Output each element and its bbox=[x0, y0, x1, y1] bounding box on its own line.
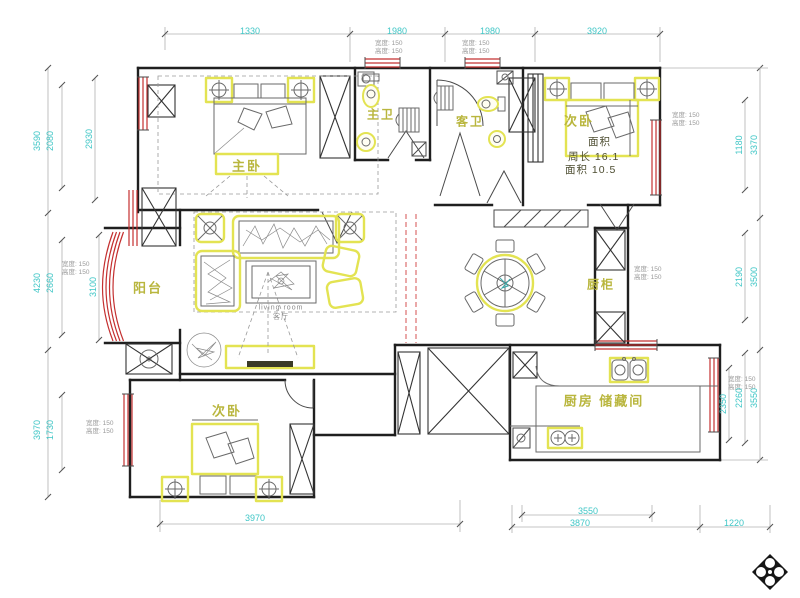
dim-top-4: 3920 bbox=[587, 26, 607, 36]
chair bbox=[526, 253, 545, 275]
dim-top-3: 1980 bbox=[480, 26, 500, 36]
dim-top-2: 1980 bbox=[387, 26, 407, 36]
column-junction bbox=[142, 188, 176, 246]
coffee-table bbox=[246, 261, 316, 303]
sink bbox=[357, 133, 375, 151]
dim-bottom-right-2: 3870 bbox=[570, 518, 590, 528]
chair bbox=[496, 240, 514, 252]
stat-area-tag: 面积 bbox=[588, 134, 611, 149]
window-top-guest-bath bbox=[465, 57, 500, 69]
furniture-guest-bath bbox=[434, 71, 513, 147]
room-label-cabinet: 厨柜 bbox=[587, 276, 615, 293]
window-note: 宽度: 150高度: 150 bbox=[672, 112, 699, 128]
chair bbox=[496, 314, 514, 326]
closet-column bbox=[320, 76, 350, 158]
dim-left-inner-2: 2660 bbox=[45, 273, 55, 293]
living-room-note-line1: living room bbox=[259, 305, 304, 312]
dim-bottom-right-3: 1220 bbox=[724, 518, 744, 528]
window-junction-left bbox=[129, 190, 137, 246]
door-master-bath bbox=[388, 131, 424, 158]
chair bbox=[526, 291, 545, 313]
window-bedroom-top-right bbox=[650, 120, 662, 195]
furniture-bedroom-bottom-left bbox=[162, 420, 282, 501]
room-label-guest-bath: 客卫 bbox=[456, 113, 484, 130]
window-top-master-bath bbox=[365, 57, 400, 69]
dim-left-outer-2: 4230 bbox=[32, 273, 42, 293]
dim-master-bedroom-height: 2930 bbox=[84, 129, 94, 149]
window-note: 宽度: 150高度: 150 bbox=[634, 266, 661, 282]
chair bbox=[464, 291, 483, 313]
room-label-kitchen-storage: 厨房 储藏间 bbox=[564, 391, 645, 410]
toilet bbox=[363, 85, 379, 107]
room-label-bedroom-bottom-left: 次卧 bbox=[212, 401, 242, 420]
room-label-master-bedroom: 主卧 bbox=[232, 156, 262, 175]
dim-right-outer-2: 3500 bbox=[749, 267, 759, 287]
column-kitchen bbox=[513, 352, 537, 378]
dim-left-inner-3: 1730 bbox=[45, 420, 55, 440]
dim-top-1: 1330 bbox=[240, 26, 260, 36]
furniture-master-bedroom bbox=[158, 76, 378, 198]
room-label-balcony: 阳台 bbox=[133, 278, 163, 297]
door-arc-bedroom-bl bbox=[285, 380, 313, 408]
dim-right-inner-2: 2190 bbox=[734, 267, 744, 287]
room-label-master-bath: 主卫 bbox=[367, 106, 395, 123]
dim-right-window: 2350 bbox=[718, 394, 728, 414]
window-kitchen-top bbox=[595, 339, 657, 351]
window-note: 宽度: 150高度: 150 bbox=[86, 420, 113, 436]
toilet bbox=[478, 97, 498, 111]
sink bbox=[489, 131, 505, 147]
column-bedroom-bl bbox=[290, 424, 314, 494]
shaft-large bbox=[428, 348, 509, 434]
side-chair bbox=[326, 277, 364, 309]
window-master-bedroom-left bbox=[137, 77, 149, 130]
living-room-note-line2: 客厅 bbox=[273, 312, 289, 322]
furniture-living-room bbox=[187, 212, 396, 368]
floor-plan-drawing bbox=[0, 0, 800, 598]
door-hall bbox=[487, 171, 521, 203]
dim-bottom-right-1: 3550 bbox=[578, 506, 598, 516]
window-balcony-curved bbox=[103, 232, 124, 341]
side-chair bbox=[322, 245, 361, 278]
window-note: 宽度: 150高度: 150 bbox=[462, 40, 489, 56]
room-label-bedroom-top-right: 次卧 bbox=[564, 111, 594, 130]
dim-balcony-height: 3100 bbox=[88, 277, 98, 297]
bed bbox=[214, 98, 306, 154]
dim-right-outer-3: 3550 bbox=[749, 388, 759, 408]
window-note: 宽度: 150高度: 150 bbox=[62, 261, 89, 277]
dim-right-inner-3: 2260 bbox=[734, 388, 744, 408]
tv bbox=[247, 361, 293, 367]
stat-area: 面积 10.5 bbox=[565, 162, 616, 177]
window-note: 宽度: 150高度: 150 bbox=[375, 40, 402, 56]
wardrobe-master bbox=[148, 85, 175, 117]
dim-bottom-left: 3970 bbox=[245, 513, 265, 523]
furniture-dining bbox=[464, 240, 545, 326]
dim-left-outer-3: 3970 bbox=[32, 420, 42, 440]
double-sink bbox=[610, 358, 648, 382]
compass-logo bbox=[752, 554, 788, 590]
dim-left-inner-1: 2080 bbox=[45, 131, 55, 151]
washer-balcony bbox=[126, 344, 172, 374]
chair bbox=[464, 253, 483, 275]
toilet-tank bbox=[498, 97, 505, 111]
window-bedroom-bottom-left bbox=[122, 394, 134, 466]
shaft-narrow bbox=[398, 352, 420, 434]
armchair bbox=[196, 251, 240, 311]
dim-left-outer-1: 3590 bbox=[32, 131, 42, 151]
dim-right-inner-1: 1180 bbox=[734, 135, 744, 154]
floor-plan-canvas: 主卧 主卫 客卫 次卧 阳台 厨柜 厨房 储藏间 次卧 面积 周长 16.1 面… bbox=[0, 0, 800, 598]
washing-machine bbox=[399, 108, 419, 132]
door-guest-bath bbox=[440, 133, 480, 196]
bed bbox=[192, 424, 258, 474]
dim-right-outer-1: 3370 bbox=[749, 135, 759, 155]
